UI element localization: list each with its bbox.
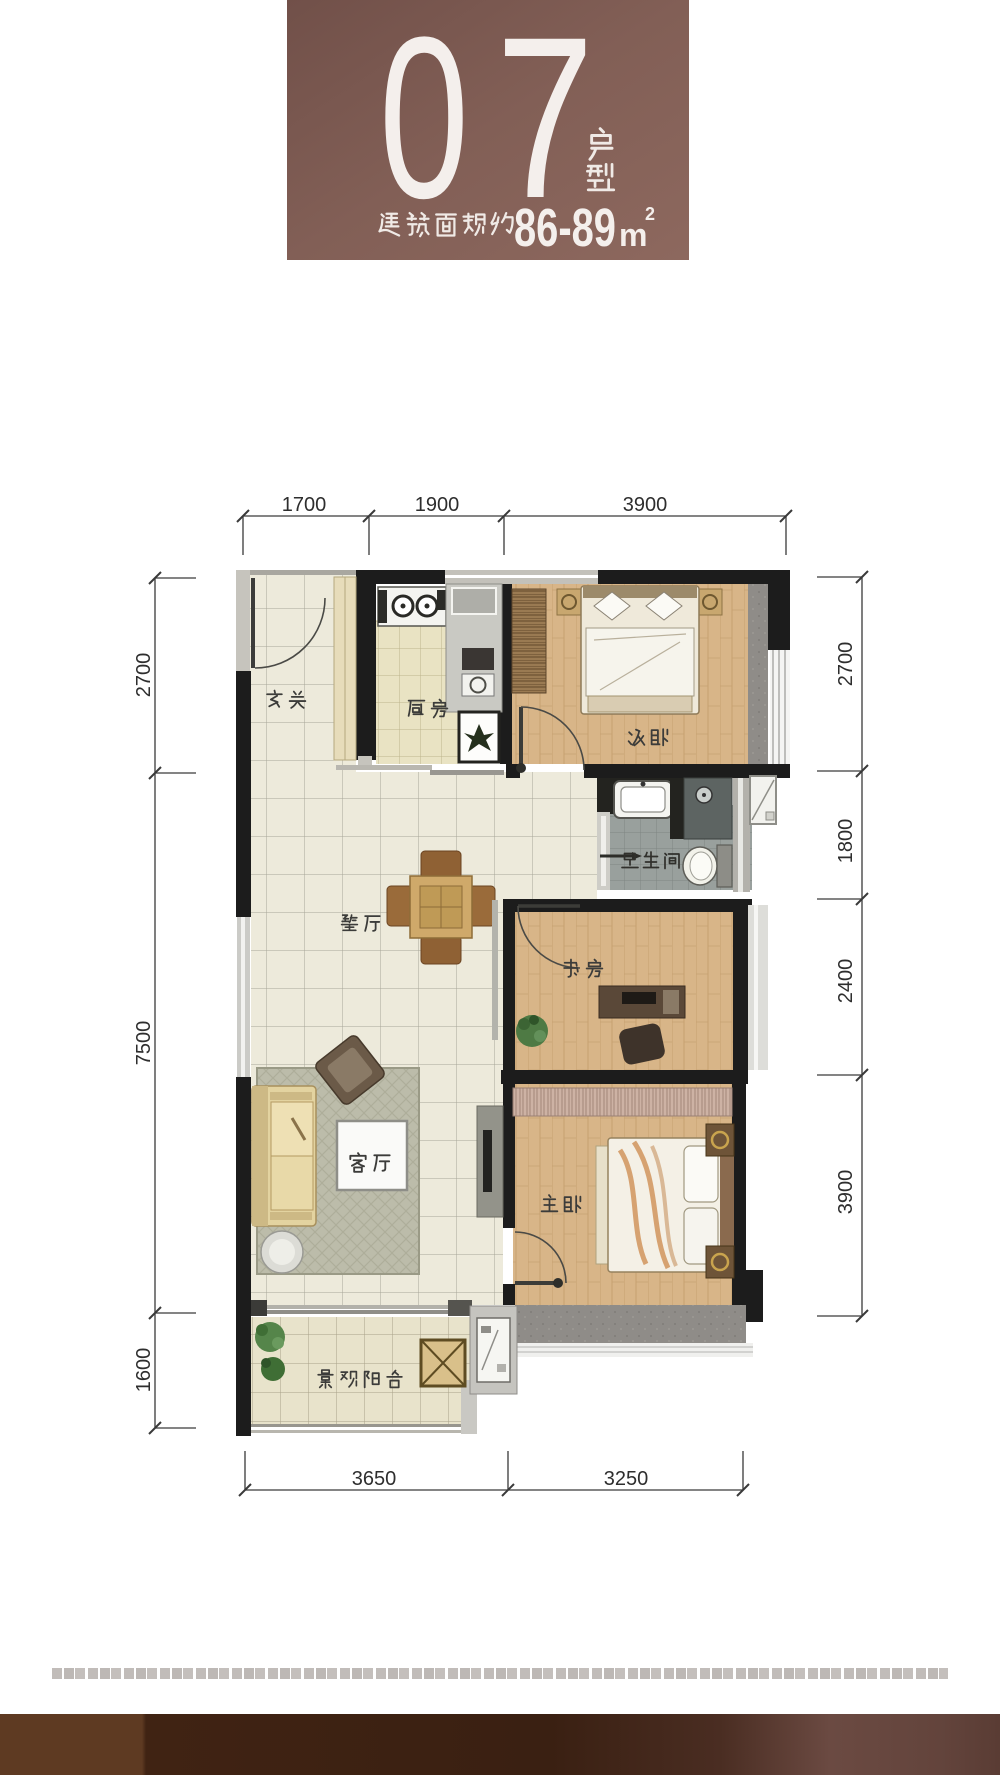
svg-text:2700: 2700 xyxy=(133,653,155,698)
svg-text:2700: 2700 xyxy=(835,642,857,687)
svg-text:1900: 1900 xyxy=(415,494,460,516)
svg-text:2400: 2400 xyxy=(835,959,857,1004)
svg-text:0: 0 xyxy=(379,0,469,246)
svg-text:1800: 1800 xyxy=(835,819,857,864)
svg-text:2: 2 xyxy=(645,204,655,224)
svg-text:3900: 3900 xyxy=(623,494,668,516)
svg-text:m: m xyxy=(619,217,647,253)
svg-text:7500: 7500 xyxy=(133,1021,155,1066)
svg-text:1700: 1700 xyxy=(282,494,327,516)
svg-text:1600: 1600 xyxy=(133,1348,155,1393)
svg-text:3650: 3650 xyxy=(352,1468,397,1490)
svg-text:86-89: 86-89 xyxy=(514,198,616,258)
svg-text:3900: 3900 xyxy=(835,1170,857,1215)
svg-text:3250: 3250 xyxy=(604,1468,649,1490)
